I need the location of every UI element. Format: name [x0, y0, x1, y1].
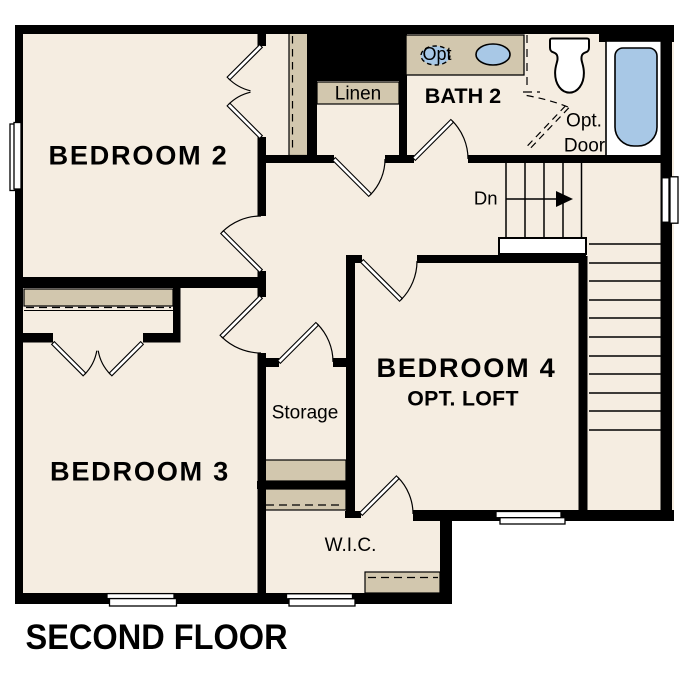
svg-text:BEDROOM 3: BEDROOM 3: [50, 455, 230, 486]
svg-text:Dn: Dn: [474, 188, 498, 209]
svg-text:Linen: Linen: [335, 83, 382, 104]
svg-text:Opt.: Opt.: [566, 111, 602, 132]
svg-text:Door: Door: [564, 136, 606, 157]
svg-text:BEDROOM 4: BEDROOM 4: [377, 352, 557, 383]
svg-text:Storage: Storage: [272, 403, 339, 424]
svg-text:SECOND FLOOR: SECOND FLOOR: [26, 618, 288, 657]
svg-text:W.I.C.: W.I.C.: [325, 535, 377, 556]
svg-text:OPT. LOFT: OPT. LOFT: [407, 387, 519, 411]
svg-text:Opt: Opt: [422, 44, 451, 64]
svg-text:BATH 2: BATH 2: [425, 83, 501, 108]
svg-text:BEDROOM 2: BEDROOM 2: [49, 139, 229, 170]
